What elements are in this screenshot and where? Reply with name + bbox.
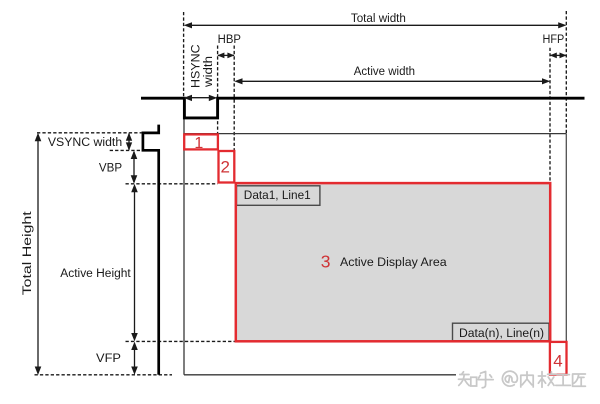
svg-text:HFP: HFP — [543, 32, 565, 46]
svg-text:2: 2 — [220, 158, 229, 177]
svg-text:Total Height: Total Height — [20, 211, 34, 296]
svg-text:Data(n), Line(n): Data(n), Line(n) — [459, 326, 544, 340]
svg-text:Active Display Area: Active Display Area — [340, 255, 447, 269]
svg-text:Active Height: Active Height — [60, 266, 131, 280]
svg-text:Total width: Total width — [351, 11, 406, 25]
svg-text:Active width: Active width — [354, 64, 415, 78]
svg-text:HBP: HBP — [218, 32, 241, 46]
svg-text:1: 1 — [194, 135, 203, 152]
svg-text:3: 3 — [321, 252, 331, 272]
svg-text:VSYNC width: VSYNC width — [48, 135, 122, 149]
svg-text:VBP: VBP — [99, 160, 122, 174]
svg-text:Data1, Line1: Data1, Line1 — [244, 188, 311, 202]
svg-text:4: 4 — [553, 352, 562, 371]
svg-text:width: width — [201, 56, 215, 88]
svg-text:VFP: VFP — [96, 351, 121, 365]
